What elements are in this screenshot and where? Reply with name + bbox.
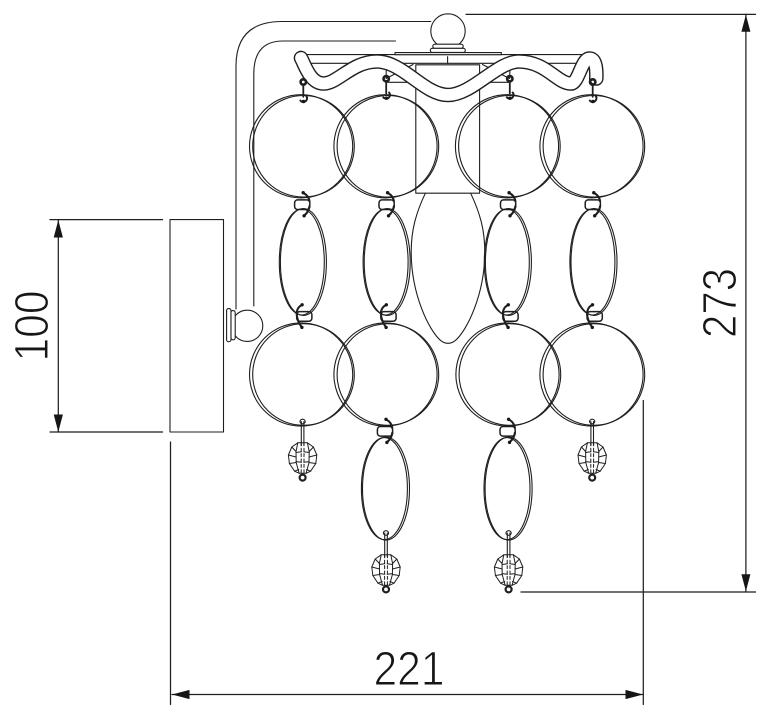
svg-text:273: 273 [694,268,747,338]
svg-text:100: 100 [6,291,59,362]
svg-text:221: 221 [374,643,445,696]
